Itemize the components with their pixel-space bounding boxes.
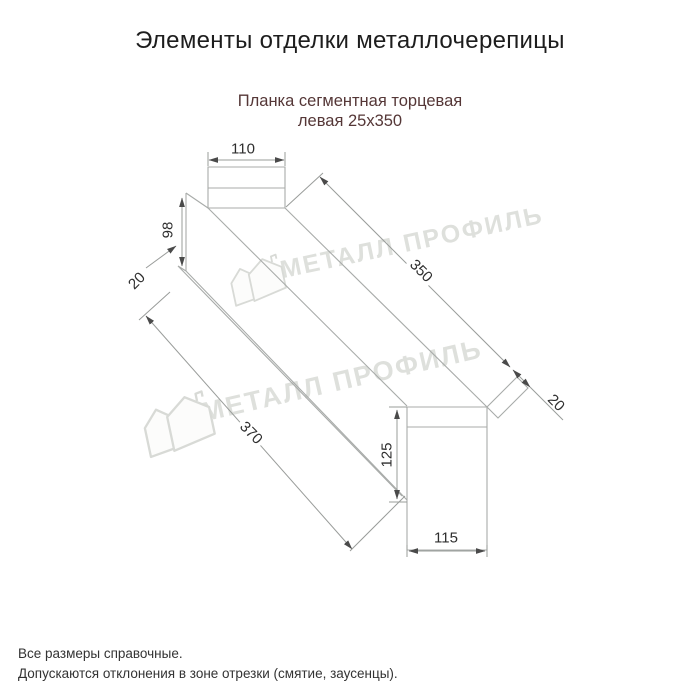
strip-edge-middle	[208, 208, 407, 406]
footer-note-1: Все размеры справочные.	[18, 646, 183, 661]
product-drawing-page: Элементы отделки металлочерепицы Планка …	[0, 0, 700, 700]
right-end-flap	[487, 377, 528, 418]
watermark-logo-1	[227, 254, 287, 306]
dim-label-top-width: 110	[231, 141, 255, 158]
technical-drawing	[0, 0, 700, 700]
footer-note-2: Допускаются отклонения в зоне отрезки (с…	[18, 666, 398, 681]
dim-label-right-width: 115	[431, 530, 461, 547]
dim-label-right-height: 125	[379, 442, 396, 467]
hem-outer-edge	[178, 266, 402, 496]
dim-label-left-height: 98	[160, 222, 177, 239]
strip-edge-upper	[285, 208, 487, 407]
dim-ext-350	[286, 173, 323, 207]
watermark-logo-2	[140, 391, 217, 457]
dimension-lines	[139, 152, 563, 557]
dim-line-20-left	[146, 246, 176, 268]
part-outline	[178, 167, 528, 550]
left-top-fold	[186, 193, 208, 208]
hem-fold-edge	[186, 271, 407, 500]
